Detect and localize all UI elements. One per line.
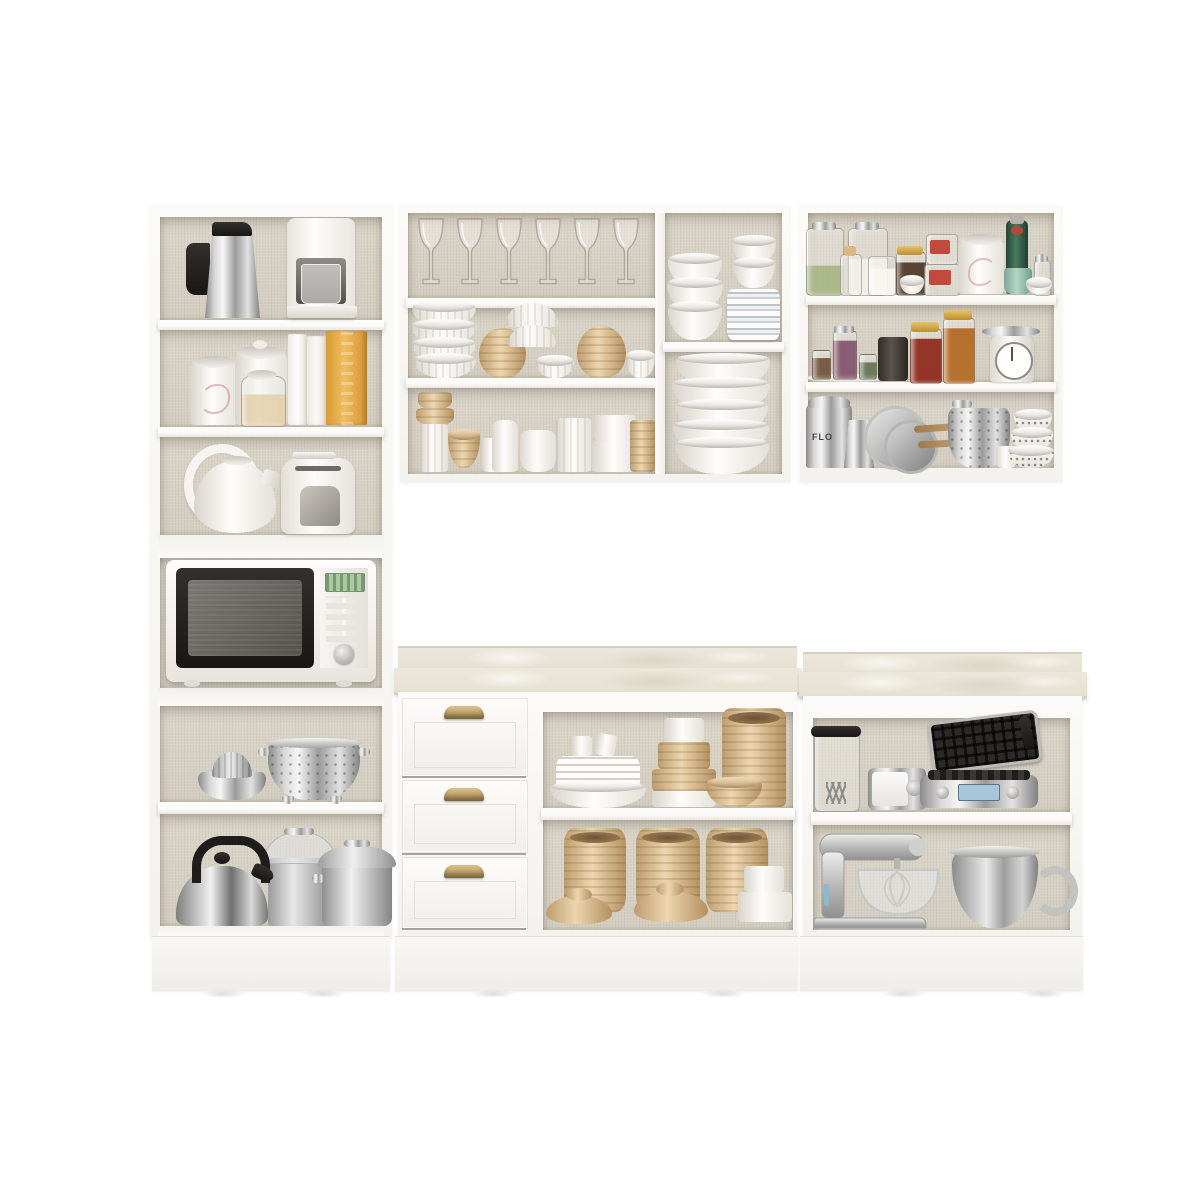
red-label <box>930 240 950 254</box>
wine-glass <box>531 217 565 295</box>
french-press-body <box>205 232 260 318</box>
white-fill-jar <box>868 256 896 296</box>
steel-kettle-knob <box>214 852 230 864</box>
white-vase <box>492 420 518 472</box>
french-press-handle <box>186 243 210 295</box>
niche-top <box>158 535 384 558</box>
coffee-machine-base <box>287 306 357 318</box>
coffee-carafe <box>301 264 341 304</box>
stacked-plates <box>727 289 780 340</box>
niche-bottom <box>158 688 384 706</box>
lid-knob <box>566 888 592 901</box>
blender-lid <box>811 726 861 737</box>
canister-opening <box>728 712 780 724</box>
bowl-rim <box>950 846 1040 858</box>
colander-handle <box>358 748 370 756</box>
microwave-window <box>188 580 302 656</box>
plinth-right <box>800 936 1083 991</box>
tier-box-base <box>652 791 716 807</box>
drawer-2-pull[interactable] <box>444 788 484 801</box>
honey-jar <box>943 318 975 384</box>
microwave-display <box>325 573 365 592</box>
blender-blades <box>826 782 846 804</box>
canister-opening <box>642 832 694 843</box>
white-pot <box>520 430 556 472</box>
bottle-clamp-top <box>1010 214 1024 224</box>
white-kettle-lid <box>222 456 252 465</box>
stand-mixer <box>812 822 946 930</box>
flour-tin-label: FLO <box>812 432 842 444</box>
book-white-1 <box>288 334 307 425</box>
gold-lid <box>944 310 972 320</box>
book-white-2 <box>307 336 326 425</box>
book-gold <box>326 331 367 425</box>
french-press-lid <box>212 222 252 236</box>
scale-needle <box>1011 347 1013 361</box>
mesh-pot-handle <box>952 400 972 408</box>
stockpot-handle <box>312 874 324 883</box>
wine-glass <box>609 217 643 295</box>
colander-handle <box>258 748 270 756</box>
stockpot-lid-handle <box>344 840 370 847</box>
white-stack-bottom <box>738 892 792 922</box>
drawer-2-panel <box>414 804 516 844</box>
scale-dial <box>995 342 1033 380</box>
stockpot-body <box>322 864 392 926</box>
clamp-lid <box>855 222 879 230</box>
spice-jar-green <box>859 354 877 380</box>
wine-glass <box>453 217 487 295</box>
white-stack-top <box>744 866 784 892</box>
flour-tin-lid <box>808 396 850 408</box>
toaster-lever <box>292 452 336 459</box>
canister-opening <box>712 832 762 843</box>
shelf-board <box>158 802 384 814</box>
foot-shadow <box>470 990 516 998</box>
drawer-1-panel <box>414 722 516 768</box>
canister-lid <box>192 356 236 368</box>
lid-knob <box>656 882 684 896</box>
backsplash <box>398 646 797 670</box>
shelf-board <box>158 320 384 330</box>
shelf-board <box>541 808 795 820</box>
tan-vase <box>577 326 626 378</box>
colander-rim <box>266 738 362 748</box>
gold-lid <box>897 246 923 255</box>
waffle-display <box>958 784 1000 801</box>
gold-lid <box>911 322 939 332</box>
foot-shadow <box>700 990 746 998</box>
red-label <box>929 270 951 285</box>
tall-pot-body <box>268 858 330 926</box>
shelf-board <box>663 342 784 352</box>
spice-jar-purple <box>833 331 857 380</box>
small-cup <box>572 736 592 758</box>
microwave-foot <box>184 680 200 687</box>
grain-jar-lid <box>247 370 277 380</box>
cabinet-bottom <box>158 926 384 936</box>
tier-box-top <box>664 718 704 742</box>
toaster-slot <box>295 466 341 471</box>
drawer-gap <box>402 776 526 778</box>
spice-lid <box>834 326 854 333</box>
white-jar-knob <box>253 340 267 349</box>
backsplash <box>803 652 1082 674</box>
tan-ribbed-box <box>630 420 655 472</box>
corked-bottle <box>840 254 862 296</box>
spice-jar-brown <box>812 350 831 380</box>
canister-lid <box>960 234 1002 245</box>
white-ribbed-cylinder <box>420 424 448 472</box>
drawer-1-pull[interactable] <box>444 706 484 719</box>
foot-shadow <box>300 990 346 998</box>
white-ribbed-canister <box>556 418 592 472</box>
plinth-left <box>152 936 390 991</box>
toaster-side-shade <box>300 486 340 526</box>
drawer-gap <box>402 853 526 855</box>
countertop <box>394 668 802 695</box>
wine-glass <box>492 217 526 295</box>
product-photo-kitchen-set: Product photograph of a white modular ki… <box>0 0 1200 1200</box>
small-cup <box>594 732 618 757</box>
clamp-jar-herbs <box>806 228 844 296</box>
microwave-knob <box>334 644 354 664</box>
drawer-3-panel <box>414 881 516 919</box>
foot-shadow <box>880 990 926 998</box>
appliance-front <box>872 772 908 806</box>
dispenser-cap <box>1035 254 1048 262</box>
foot-shadow <box>200 990 246 998</box>
waffle-maker-lower-plate <box>928 770 1030 780</box>
shelf-board <box>806 295 1056 305</box>
clamp-lid <box>812 222 836 230</box>
dark-canister <box>878 337 908 381</box>
tier-box-mid <box>658 742 710 769</box>
wine-glass <box>414 217 448 295</box>
microwave-buttons <box>326 596 362 642</box>
shelf-board <box>406 378 657 388</box>
plinth-middle <box>395 936 798 991</box>
grain-jar <box>241 376 286 427</box>
drawer-3-pull[interactable] <box>444 865 484 878</box>
cork <box>844 246 856 256</box>
wine-glass <box>570 217 604 295</box>
tall-pot-lid-handle <box>284 828 314 835</box>
shelf-board <box>158 427 384 437</box>
bottle-seal <box>1011 226 1023 235</box>
microwave-foot <box>336 680 352 687</box>
waffle-knob <box>1006 786 1019 799</box>
jam-jar <box>910 329 942 384</box>
countertop <box>799 672 1087 699</box>
drawer-gap <box>402 928 526 930</box>
foot-shadow <box>1020 990 1066 998</box>
canister-opening <box>570 832 620 843</box>
bowl-handle <box>1032 866 1078 916</box>
canister-dome-lid <box>634 892 708 922</box>
waffle-knob <box>936 786 949 799</box>
